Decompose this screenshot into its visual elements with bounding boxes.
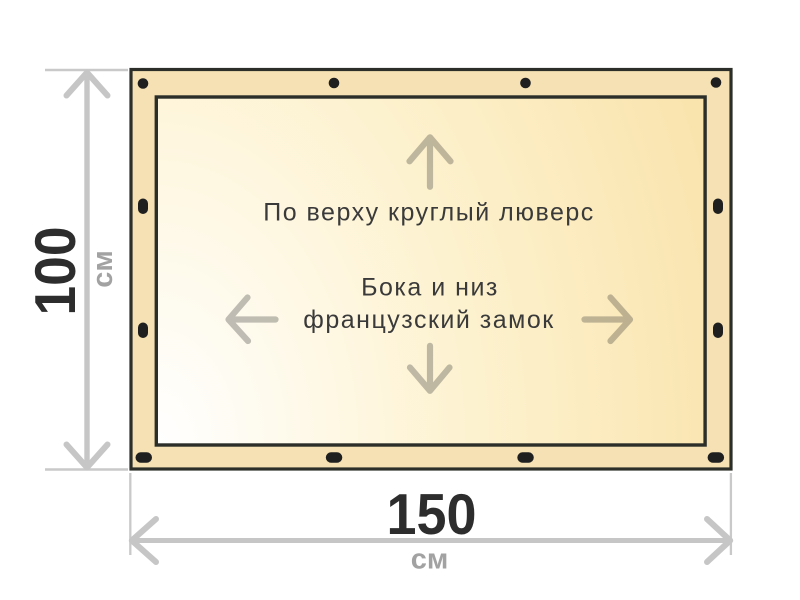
svg-text:100: 100 [24,227,88,316]
svg-text:французский замок: французский замок [303,306,554,334]
svg-text:По верху круглый люверс: По верху круглый люверс [263,199,595,227]
svg-text:см: см [411,544,449,576]
svg-text:см: см [87,250,119,288]
svg-text:Бока и низ: Бока и низ [361,274,499,302]
svg-text:150: 150 [387,483,477,547]
